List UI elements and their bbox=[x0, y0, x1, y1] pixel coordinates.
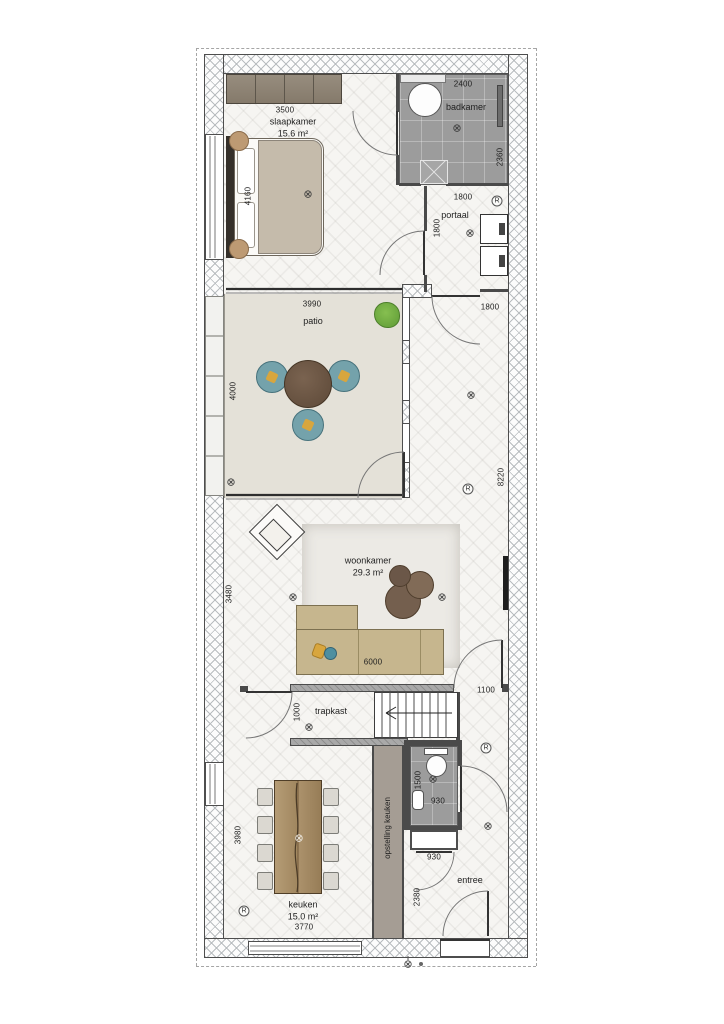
boundary-line-left bbox=[196, 48, 197, 966]
portaal-wall-a bbox=[424, 186, 427, 231]
stair-wall-stub-right bbox=[502, 684, 508, 692]
room-name: trapkast bbox=[315, 706, 347, 716]
bathroom-wall-left-b bbox=[396, 155, 399, 185]
bathroom-wall-bottom-b bbox=[446, 183, 508, 186]
room-label-slaapkamer: slaapkamer 15.6 m² bbox=[270, 116, 317, 139]
exterior-light-icon: ⊗ bbox=[403, 959, 412, 970]
patio-pier-3 bbox=[402, 462, 410, 498]
stair-wall-bottom bbox=[290, 738, 408, 746]
bathroom-wall-left-a bbox=[396, 74, 399, 112]
dim-cabinet-width: 930 bbox=[427, 853, 441, 862]
dining-chair bbox=[257, 844, 273, 862]
wardrobe bbox=[226, 74, 342, 104]
door-stub-left bbox=[240, 686, 248, 692]
room-label-trapkast: trapkast bbox=[315, 706, 347, 718]
ceiling-light-icon: ⊗ bbox=[437, 592, 446, 603]
dim-kitchen-height: 3980 bbox=[234, 826, 243, 845]
dim-patio-width: 3990 bbox=[303, 300, 322, 309]
dim-trapkast-width: 1000 bbox=[293, 703, 302, 722]
dim-east-side: 8220 bbox=[497, 468, 506, 487]
dim-portaal-height: 1800 bbox=[433, 219, 442, 238]
bathroom-wall-bottom-a bbox=[399, 183, 421, 186]
toilet-tank-wc bbox=[424, 748, 448, 755]
exterior-wall-top bbox=[204, 54, 528, 74]
smoke-detector-icon: R bbox=[481, 743, 492, 754]
dim-living-height: 3480 bbox=[225, 585, 234, 604]
portaal-wall-b bbox=[424, 275, 427, 292]
bedside-pouf-2 bbox=[229, 239, 249, 259]
bathroom-shelf bbox=[400, 74, 446, 83]
room-label-badkamer: badkamer bbox=[446, 102, 486, 114]
chair-cushion bbox=[265, 370, 278, 383]
dim-wc-width: 930 bbox=[431, 797, 445, 806]
front-door-opening bbox=[440, 939, 490, 957]
smoke-detector-icon: R bbox=[492, 196, 503, 207]
appliance-connector-icon bbox=[499, 223, 505, 235]
dim-wc-height: 1500 bbox=[414, 771, 423, 790]
patio-chair-left bbox=[256, 361, 288, 393]
washbasin bbox=[412, 790, 424, 810]
room-label-entree: entree bbox=[457, 875, 483, 887]
hall-cabinet bbox=[410, 830, 458, 850]
patio-pier-1 bbox=[402, 340, 410, 364]
bedside-pouf-1 bbox=[229, 131, 249, 151]
ceiling-light-icon: ⊗ bbox=[428, 774, 437, 785]
dim-patio-height: 4000 bbox=[229, 382, 238, 401]
room-label-opstelling-keuken: opstelling keuken bbox=[383, 797, 393, 859]
sofa-pillow-teal bbox=[324, 647, 337, 660]
room-label-woonkamer: woonkamer 29.3 m² bbox=[345, 555, 392, 578]
patio-fence bbox=[205, 296, 224, 496]
plant bbox=[374, 302, 400, 328]
smoke-detector-icon: R bbox=[463, 484, 474, 495]
dim-kitchen-width: 3770 bbox=[295, 923, 314, 932]
kitchen-side-window bbox=[205, 762, 224, 806]
stair-wall-top bbox=[290, 684, 454, 692]
dining-chair bbox=[257, 872, 273, 890]
wc-wall-top bbox=[404, 740, 462, 746]
ceiling-light-icon: ⊗ bbox=[303, 189, 312, 200]
dining-chair bbox=[323, 788, 339, 806]
shower-drain bbox=[420, 160, 448, 184]
room-name: woonkamer bbox=[345, 555, 392, 567]
tv bbox=[503, 556, 508, 610]
ceiling-light-icon: ⊗ bbox=[304, 722, 313, 733]
ceiling-light-icon: ⊗ bbox=[483, 821, 492, 832]
floor-plan: slaapkamer 15.6 m² badkamer portaal pati… bbox=[0, 0, 724, 1024]
bedroom-window bbox=[205, 134, 224, 260]
dining-chair bbox=[323, 816, 339, 834]
dining-chair bbox=[257, 788, 273, 806]
room-label-keuken: keuken 15.0 m² bbox=[288, 899, 319, 922]
room-area: 29.3 m² bbox=[345, 567, 392, 579]
ceiling-light-icon: ⊗ bbox=[466, 390, 475, 401]
exterior-wall-right bbox=[508, 54, 528, 958]
room-label-portaal: portaal bbox=[441, 210, 469, 222]
appliance-washer bbox=[480, 214, 508, 244]
dim-bath-height: 2360 bbox=[496, 148, 505, 167]
wc-wall-right-a bbox=[458, 746, 462, 766]
patio-table bbox=[284, 360, 332, 408]
patio-chair-right bbox=[328, 360, 360, 392]
appliance-connector-icon bbox=[499, 255, 505, 267]
patio-pier-2 bbox=[402, 400, 410, 424]
dining-chair bbox=[323, 844, 339, 862]
doorbell-icon bbox=[419, 962, 423, 966]
portaal-wall-bottom bbox=[480, 289, 508, 292]
room-name: entree bbox=[457, 875, 483, 885]
radiator bbox=[497, 85, 503, 127]
wc-wall-left bbox=[404, 746, 410, 830]
room-name: slaapkamer bbox=[270, 116, 317, 128]
boundary-line-right bbox=[536, 48, 537, 966]
boundary-line-bottom bbox=[196, 966, 536, 967]
appliance-dryer bbox=[480, 246, 508, 276]
ceiling-light-icon: ⊗ bbox=[294, 833, 303, 844]
room-name: keuken bbox=[288, 899, 319, 911]
dining-chair bbox=[323, 872, 339, 890]
chair-cushion bbox=[301, 418, 314, 431]
dining-chair bbox=[257, 816, 273, 834]
patio-chair-bottom bbox=[292, 409, 324, 441]
toilet-bathroom bbox=[408, 83, 442, 117]
dim-wardrobe: 3500 bbox=[276, 106, 295, 115]
ceiling-light-icon: ⊗ bbox=[226, 477, 235, 488]
chair-cushion bbox=[337, 369, 350, 382]
room-name: badkamer bbox=[446, 102, 486, 112]
stairs bbox=[374, 692, 458, 738]
room-name: portaal bbox=[441, 210, 469, 220]
boundary-line-top bbox=[196, 48, 536, 49]
ceiling-light-icon: ⊗ bbox=[452, 123, 461, 134]
dim-corridor-width: 1800 bbox=[481, 303, 500, 312]
room-name: patio bbox=[303, 316, 323, 326]
room-label-patio: patio bbox=[303, 316, 323, 328]
dim-bed: 4160 bbox=[244, 187, 253, 206]
ceiling-light-icon: ⊗ bbox=[465, 228, 474, 239]
room-area: 15.6 m² bbox=[270, 128, 317, 140]
dim-entree-height: 2380 bbox=[413, 888, 422, 907]
room-area: 15.0 m² bbox=[288, 911, 319, 923]
room-name: opstelling keuken bbox=[383, 797, 392, 859]
dim-hall-bath: 1800 bbox=[454, 193, 473, 202]
armchair-seat bbox=[259, 519, 292, 552]
corridor-wall-pier bbox=[402, 284, 432, 298]
dim-sofa: 6000 bbox=[364, 658, 383, 667]
kitchen-front-window bbox=[248, 941, 362, 955]
dim-bath-width: 2400 bbox=[454, 80, 473, 89]
dim-living-door: 1100 bbox=[477, 686, 495, 695]
coffee-table-small bbox=[389, 565, 411, 587]
ceiling-light-icon: ⊗ bbox=[288, 592, 297, 603]
smoke-detector-icon: R bbox=[239, 906, 250, 917]
